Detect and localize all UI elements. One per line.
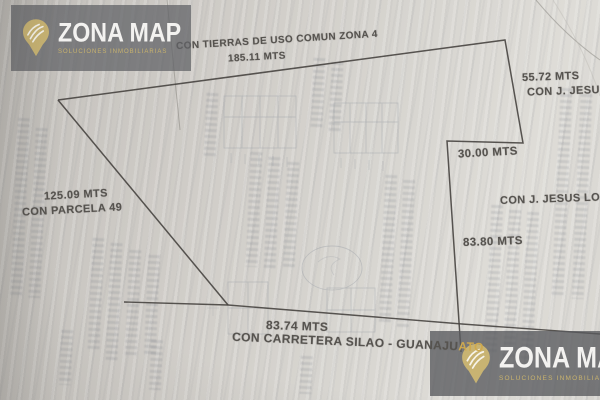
label-right-upper-length: 55.72 MTS [522,70,580,85]
watermark-top-left: ZONA MAP SOLUCIONES INMOBILIARIAS [11,5,191,71]
brand-name: ZONA MAP [499,344,600,373]
road-line [124,302,600,334]
brand-tagline: SOLUCIONES INMOBILIARIAS [58,49,190,55]
brand-tagline: SOLUCIONES INMOBILIARIAS [499,375,600,382]
brand-name: ZONA MAP [58,20,181,47]
parcel-boundary [58,40,523,352]
map-pin-icon [21,17,51,59]
label-right-lower-length: 83.80 MTS [463,235,523,251]
label-road-overlap: ATO [458,339,484,354]
ghost-structures [207,96,398,334]
survey-photo: CON TIERRAS DE USO COMUN ZONA 4 185.11 M… [0,0,600,400]
label-right-upper-neighbor: CON J. JESUS L [527,83,600,99]
